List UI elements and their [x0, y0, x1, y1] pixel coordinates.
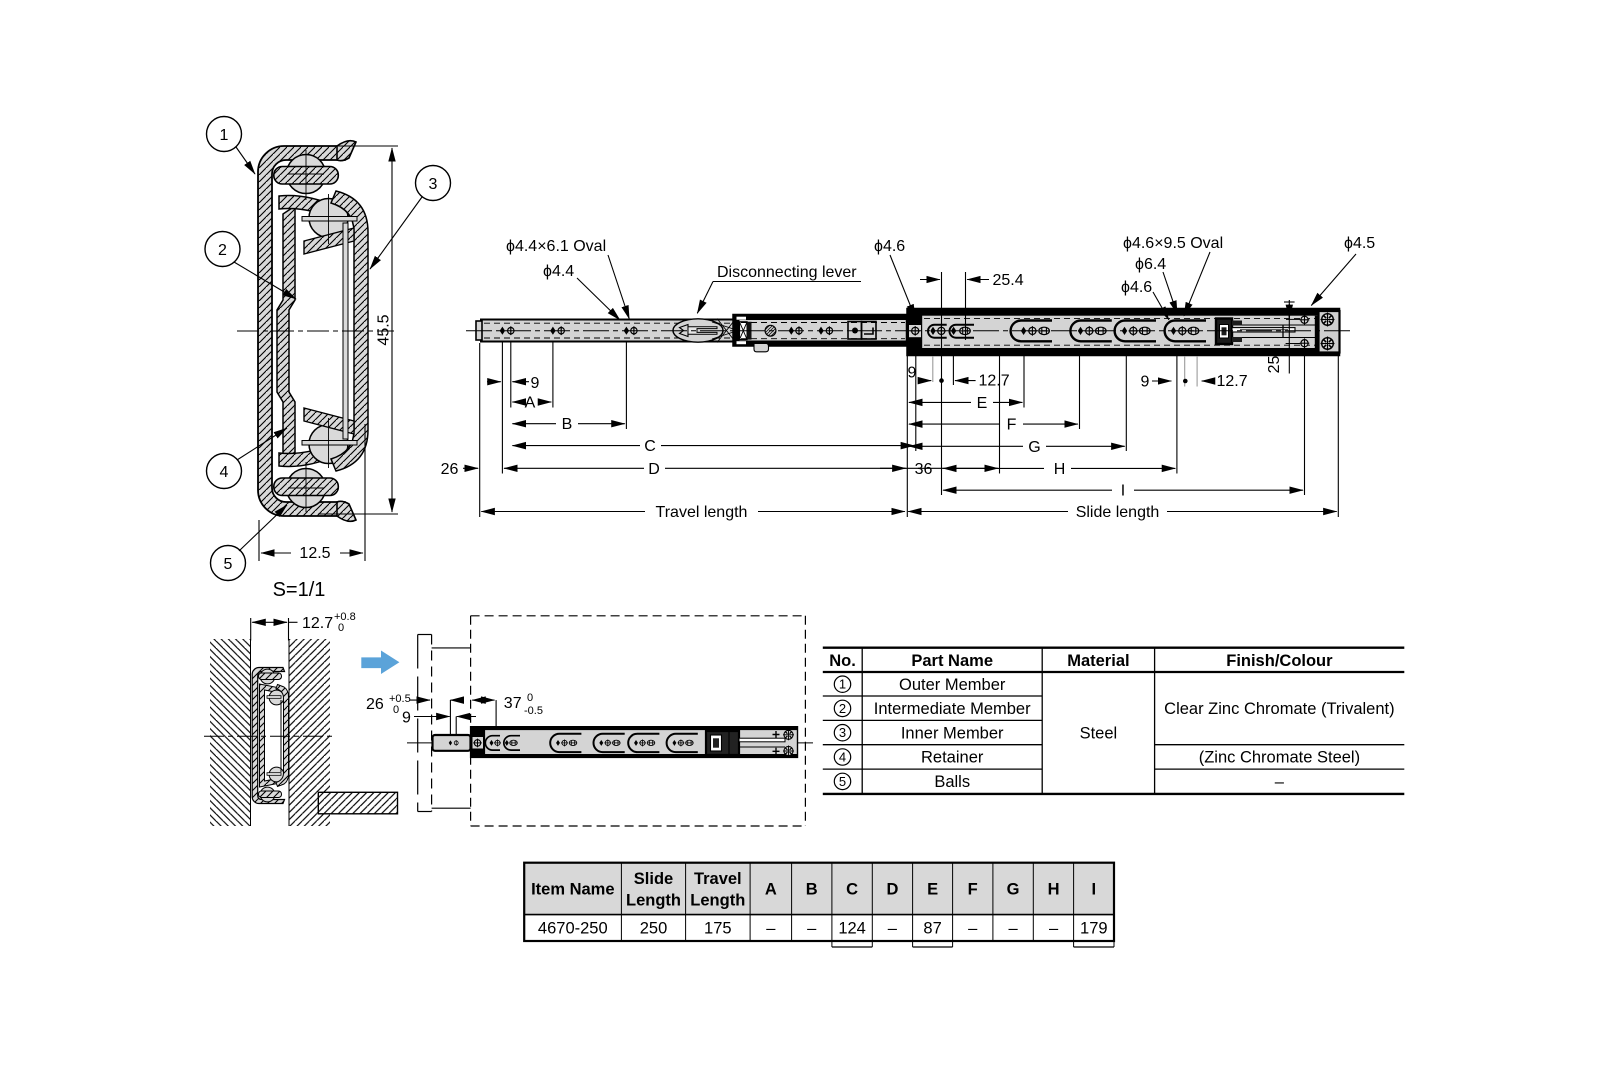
svg-text:1: 1 — [839, 677, 846, 692]
svg-text:(Zinc Chromate Steel): (Zinc Chromate Steel) — [1199, 749, 1360, 767]
svg-text:I: I — [1092, 881, 1097, 899]
svg-text:–: – — [1275, 773, 1285, 791]
svg-text:–: – — [968, 920, 978, 938]
svg-text:4670-250: 4670-250 — [538, 920, 608, 938]
svg-text:–: – — [1049, 920, 1059, 938]
svg-text:2: 2 — [839, 701, 846, 716]
svg-text:124: 124 — [838, 920, 866, 938]
svg-text:3: 3 — [839, 725, 846, 740]
svg-text:A: A — [525, 395, 536, 412]
svg-text:5: 5 — [839, 774, 846, 789]
svg-text:Travel length: Travel length — [656, 504, 748, 521]
svg-text:D: D — [648, 461, 660, 478]
svg-text:ϕ6.4: ϕ6.4 — [1135, 256, 1166, 273]
svg-text:175: 175 — [704, 920, 732, 938]
svg-text:Finish/Colour: Finish/Colour — [1226, 652, 1333, 670]
svg-text:26: 26 — [366, 696, 384, 713]
svg-text:–: – — [766, 920, 776, 938]
svg-text:12.7: 12.7 — [979, 373, 1010, 390]
svg-text:G: G — [1007, 881, 1020, 899]
svg-text:C: C — [846, 881, 858, 899]
svg-text:ϕ4.5: ϕ4.5 — [1344, 235, 1375, 252]
svg-text:Retainer: Retainer — [921, 749, 984, 767]
svg-text:0: 0 — [338, 622, 344, 634]
svg-text:179: 179 — [1080, 920, 1108, 938]
svg-text:9: 9 — [908, 365, 917, 382]
svg-text:250: 250 — [640, 920, 668, 938]
svg-text:9: 9 — [1141, 374, 1150, 391]
svg-text:B: B — [806, 881, 818, 899]
svg-text:I: I — [1121, 483, 1125, 500]
svg-text:Length: Length — [690, 892, 745, 910]
svg-text:0: 0 — [393, 704, 399, 716]
svg-text:ϕ4.6×9.5 Oval: ϕ4.6×9.5 Oval — [1123, 235, 1223, 252]
svg-text:Inner Member: Inner Member — [901, 724, 1004, 742]
svg-text:ϕ4.4: ϕ4.4 — [543, 263, 574, 280]
svg-text:Travel: Travel — [694, 870, 742, 888]
svg-text:25: 25 — [1266, 356, 1283, 374]
svg-text:Outer Member: Outer Member — [899, 676, 1006, 694]
svg-text:B: B — [562, 416, 573, 433]
svg-text:Balls: Balls — [934, 773, 970, 791]
svg-text:Material: Material — [1067, 652, 1129, 670]
svg-text:D: D — [886, 881, 898, 899]
svg-text:F: F — [968, 881, 978, 899]
svg-text:3: 3 — [429, 176, 438, 193]
svg-text:S=1/1: S=1/1 — [273, 579, 326, 601]
svg-text:G: G — [1028, 439, 1040, 456]
svg-text:25.4: 25.4 — [993, 272, 1024, 289]
svg-text:E: E — [927, 881, 938, 899]
svg-text:1: 1 — [220, 127, 229, 144]
svg-text:Part Name: Part Name — [911, 652, 993, 670]
svg-text:5: 5 — [224, 556, 233, 573]
svg-text:H: H — [1048, 881, 1060, 899]
svg-text:0: 0 — [527, 692, 533, 704]
svg-text:Length: Length — [626, 892, 681, 910]
svg-text:Clear Zinc Chromate (Trivalent: Clear Zinc Chromate (Trivalent) — [1164, 700, 1394, 718]
svg-text:36: 36 — [915, 461, 933, 478]
svg-text:37: 37 — [504, 695, 522, 712]
svg-text:45.5: 45.5 — [376, 314, 393, 345]
svg-text:–: – — [1009, 920, 1019, 938]
svg-text:4: 4 — [839, 750, 846, 765]
svg-text:12.5: 12.5 — [299, 545, 330, 562]
svg-text:Item Name: Item Name — [531, 881, 614, 899]
svg-text:H: H — [1054, 461, 1066, 478]
svg-text:A: A — [765, 881, 777, 899]
svg-text:9: 9 — [531, 375, 540, 392]
svg-text:–: – — [888, 920, 898, 938]
svg-text:C: C — [644, 438, 656, 455]
svg-text:-0.5: -0.5 — [524, 705, 543, 717]
svg-text:26: 26 — [441, 461, 459, 478]
svg-text:Slide length: Slide length — [1076, 504, 1160, 521]
svg-text:ϕ4.6: ϕ4.6 — [1121, 279, 1152, 296]
svg-text:2: 2 — [218, 242, 227, 259]
svg-text:ϕ4.4×6.1 Oval: ϕ4.4×6.1 Oval — [506, 238, 606, 255]
svg-text:87: 87 — [923, 920, 941, 938]
svg-text:12.7: 12.7 — [1217, 373, 1248, 390]
svg-text:9: 9 — [402, 710, 411, 727]
svg-text:–: – — [807, 920, 817, 938]
svg-text:Intermediate Member: Intermediate Member — [874, 700, 1031, 718]
svg-text:Steel: Steel — [1080, 724, 1118, 742]
svg-text:4: 4 — [220, 464, 229, 481]
svg-text:F: F — [1007, 417, 1017, 434]
svg-text:ϕ4.6: ϕ4.6 — [874, 238, 905, 255]
svg-text:Disconnecting lever: Disconnecting lever — [717, 264, 857, 281]
svg-text:No.: No. — [829, 652, 856, 670]
svg-text:E: E — [977, 395, 988, 412]
svg-text:12.7: 12.7 — [302, 615, 333, 632]
svg-text:Slide: Slide — [634, 870, 673, 888]
